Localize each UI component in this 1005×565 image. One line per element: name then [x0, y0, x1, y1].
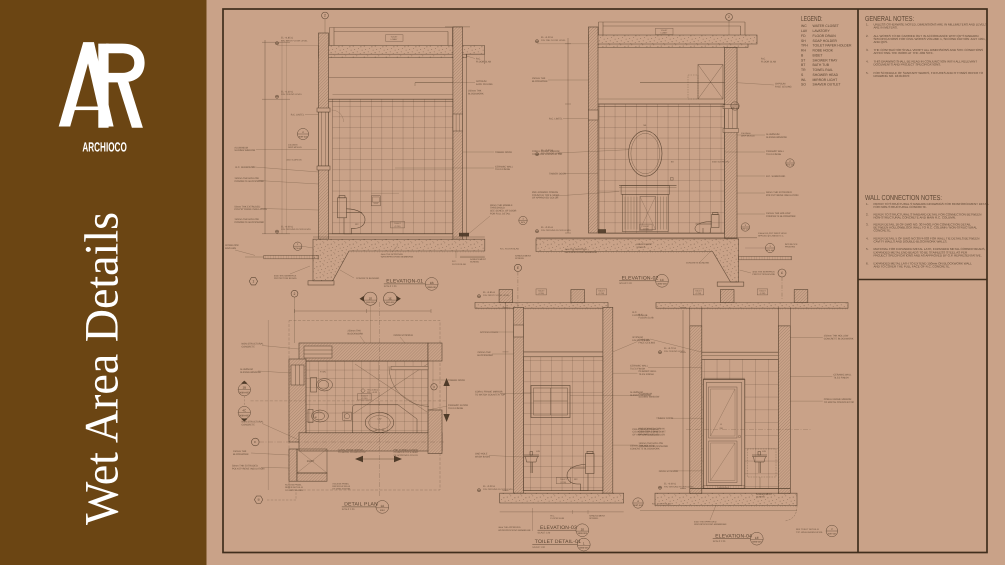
- svg-text:TIMBER DOOR: TIMBER DOOR: [656, 417, 673, 420]
- svg-text:TPH: TPH: [801, 44, 808, 48]
- svg-text:NON-STRUCTURAL CONCRETE AND MA: NON-STRUCTURAL CONCRETE AND MAIN R.C. CO…: [874, 216, 956, 220]
- svg-text:DOCUMENTS AND PROJECT SPECIFIC: DOCUMENTS AND PROJECT SPECIFICATIONS.: [874, 62, 942, 66]
- svg-text:B: B: [258, 498, 260, 502]
- svg-text:FACE CEILING: FACE CEILING: [775, 86, 792, 89]
- svg-text:SOAP HOLDER: SOAP HOLDER: [813, 39, 838, 43]
- svg-text:SLIDING WINDOW: SLIDING WINDOW: [234, 149, 255, 152]
- svg-text:TOILET DETAIL-01: TOILET DETAIL-01: [535, 539, 581, 545]
- svg-text:TOWEL RAIL: TOWEL RAIL: [813, 68, 833, 72]
- svg-text:LOBBY: LOBBY: [391, 38, 398, 41]
- svg-text:SCALE 1:20: SCALE 1:20: [532, 546, 545, 549]
- svg-text:EL +0.00 &: EL +0.00 &: [281, 225, 293, 228]
- svg-text:Wet Area Details: Wet Area Details: [76, 212, 129, 525]
- svg-text:TOILET: TOILET: [642, 225, 650, 228]
- svg-text:TIMBER DOOR: TIMBER DOOR: [549, 173, 566, 176]
- svg-text:4mm THK APPROVED: 4mm THK APPROVED: [498, 526, 521, 529]
- svg-text:R.C. FLOOR SLAB: R.C. FLOOR SLAB: [652, 503, 671, 506]
- svg-text:10: 10: [581, 527, 585, 531]
- svg-text:3010: 3010: [380, 509, 386, 512]
- svg-text:SCALE 1:20: SCALE 1:20: [538, 531, 551, 534]
- svg-text:FOR FULL DETAIL: FOR FULL DETAIL: [490, 213, 511, 216]
- svg-text:LAV: LAV: [801, 29, 808, 33]
- svg-text:4mm THK APPROVED: 4mm THK APPROVED: [565, 248, 588, 251]
- svg-text:WATER CLOSET: WATER CLOSET: [813, 24, 839, 28]
- svg-text:INTERLOCK: INTERLOCK: [785, 243, 798, 246]
- svg-text:OF APPROVED COLOR: OF APPROVED COLOR: [394, 454, 418, 457]
- svg-text:3097-002: 3097-002: [299, 135, 309, 138]
- svg-text:2: 2: [324, 14, 326, 18]
- svg-text:COUNTER TOP & SKIRT: COUNTER TOP & SKIRT: [394, 451, 420, 454]
- svg-text:(1706): (1706): [760, 292, 766, 295]
- svg-text:TO MATCH COUNTER TOP: TO MATCH COUNTER TOP: [475, 393, 506, 396]
- svg-text:3090-003: 3090-003: [239, 392, 250, 395]
- svg-text:EL +4.85 &: EL +4.85 &: [281, 37, 293, 40]
- svg-text:PAVEARS: PAVEARS: [785, 246, 796, 249]
- svg-text:SEE TOILET DETAIL-B: SEE TOILET DETAIL-B: [796, 528, 819, 531]
- svg-text:2.: 2.: [866, 213, 869, 217]
- svg-text:3097-003: 3097-003: [634, 504, 644, 507]
- svg-text:TOILET: TOILET: [391, 36, 399, 39]
- svg-text:FIN. 2ND FLOOR LEVEL: FIN. 2ND FLOOR LEVEL: [541, 39, 566, 42]
- svg-text:PAVEARS: PAVEARS: [225, 247, 236, 250]
- svg-text:FLOOR SLAB: FLOOR SLAB: [632, 314, 647, 317]
- svg-text:WASH BASIN: WASH BASIN: [475, 455, 490, 458]
- svg-text:PRE-FORMED CORIAN: PRE-FORMED CORIAN: [394, 449, 418, 452]
- svg-text:4.: 4.: [866, 59, 869, 63]
- svg-text:ACCESS PANEL: ACCESS PANEL: [332, 482, 349, 485]
- svg-text:DOOR STOPPER: DOOR STOPPER: [394, 334, 413, 337]
- svg-text:3090-003: 3090-003: [366, 301, 375, 304]
- svg-text:PROJECT SPECIFICATIONS AND AS: PROJECT SPECIFICATIONS AND AS APPROVED B…: [874, 253, 982, 257]
- svg-text:FOR NON-STRUCTURAL CONCRETE.: FOR NON-STRUCTURAL CONCRETE.: [874, 205, 928, 209]
- svg-text:DETAIL PLAN: DETAIL PLAN: [344, 502, 378, 508]
- svg-text:TR: TR: [801, 68, 806, 72]
- svg-text:SAND/CEMENT: SAND/CEMENT: [756, 493, 773, 496]
- svg-text:(1705): (1705): [560, 481, 566, 484]
- svg-text:1B: 1B: [242, 386, 246, 390]
- svg-text:SHOWER TRAY: SHOWER TRAY: [813, 58, 839, 62]
- svg-text:3090-003: 3090-003: [427, 286, 437, 289]
- svg-text:(1706): (1706): [599, 292, 605, 295]
- svg-text:ELEVATION-02: ELEVATION-02: [622, 275, 659, 281]
- svg-text:SHAVER OUTLET: SHAVER OUTLET: [813, 83, 841, 87]
- svg-text:TO MATCH COUNTER TOP: TO MATCH COUNTER TOP: [824, 401, 855, 404]
- svg-text:TOILET: TOILET: [361, 395, 369, 398]
- svg-text:TO MATCH COUNTER TOP: TO MATCH COUNTER TOP: [532, 153, 563, 156]
- svg-text:2.: 2.: [866, 34, 869, 38]
- svg-text:TILES FINISH: TILES FINISH: [766, 153, 781, 156]
- svg-text:ST: ST: [801, 58, 805, 62]
- svg-text:R.C. SURROUND: R.C. SURROUND: [766, 175, 786, 178]
- svg-text:TYP. WASH BASIN DETAIL: TYP. WASH BASIN DETAIL: [796, 531, 824, 534]
- svg-text:E: E: [517, 266, 519, 270]
- svg-text:WALL CONNECTION NOTES:: WALL CONNECTION NOTES:: [865, 193, 942, 202]
- svg-text:(1706): (1706): [538, 292, 544, 295]
- svg-text:LOBBY: LOBBY: [661, 32, 668, 35]
- svg-text:TILES FINISH: TILES FINISH: [639, 373, 654, 376]
- svg-text:CONCRETE BLOCKWORK: CONCRETE BLOCKWORK: [234, 221, 264, 224]
- svg-text:POLYSTYRENE INSULATION: POLYSTYRENE INSULATION: [766, 194, 799, 197]
- svg-text:SCALE 1:20: SCALE 1:20: [384, 285, 397, 288]
- svg-text:RH: RH: [801, 49, 806, 53]
- svg-text:SLIDING WINDOW: SLIDING WINDOW: [766, 136, 787, 139]
- svg-text:3074-003: 3074-003: [786, 164, 794, 167]
- svg-text:3mm SLOPE DN: 3mm SLOPE DN: [286, 159, 302, 162]
- svg-text:CONCRETE BLOCKWORK: CONCRETE BLOCKWORK: [630, 447, 660, 450]
- svg-text:LAV: LAV: [378, 418, 383, 421]
- svg-text:R.C. SURROUND: R.C. SURROUND: [235, 166, 255, 169]
- svg-text:BIDET: BIDET: [813, 53, 823, 57]
- svg-text:R.C. FLOOR SLAB: R.C. FLOOR SLAB: [500, 248, 519, 251]
- svg-text:R.C.: R.C.: [452, 260, 457, 263]
- svg-text:FD: FD: [801, 34, 806, 38]
- svg-text:PROTECTION BOARD: PROTECTION BOARD: [752, 273, 775, 276]
- svg-text:WATERPROOFING MEMBRANE: WATERPROOFING MEMBRANE: [381, 255, 414, 258]
- svg-text:BLOCKWORK: BLOCKWORK: [468, 92, 484, 95]
- svg-text:SHOWER HEAD: SHOWER HEAD: [813, 73, 839, 77]
- svg-text:TOILET: TOILET: [394, 222, 402, 225]
- svg-text:LEGEND:: LEGEND:: [801, 14, 823, 23]
- svg-text:3090-003: 3090-003: [752, 541, 762, 544]
- svg-text:TOILET: TOILET: [560, 478, 568, 481]
- svg-text:SLIDING WINDOW: SLIDING WINDOW: [240, 371, 261, 374]
- svg-text:TILES FINISH: TILES FINISH: [833, 377, 848, 380]
- svg-text:DOOR STOPPER: DOOR STOPPER: [659, 470, 678, 473]
- svg-text:1B: 1B: [430, 281, 434, 285]
- svg-text:WL: WL: [801, 78, 806, 82]
- svg-text:E: E: [254, 440, 256, 444]
- svg-text:FLOOR SLAB: FLOOR SLAB: [639, 317, 654, 320]
- svg-text:TOILET: TOILET: [661, 29, 669, 32]
- svg-text:R.C. LINTEL: R.C. LINTEL: [291, 114, 305, 117]
- svg-text:FIN. FIRST FLOOR LEVEL: FIN. FIRST FLOOR LEVEL: [483, 294, 510, 297]
- svg-text:WATERPROOFING MEMBRANE: WATERPROOFING MEMBRANE: [694, 523, 727, 526]
- svg-text:TILES FINISH: TILES FINISH: [630, 368, 645, 371]
- svg-text:CORAL FRAME MIRROR: CORAL FRAME MIRROR: [338, 449, 364, 452]
- svg-text:ARE IN METERS.: ARE IN METERS.: [874, 25, 898, 29]
- svg-text:SCREED: SCREED: [589, 517, 599, 520]
- svg-text:POLYSTYRENE INSULATION: POLYSTYRENE INSULATION: [232, 467, 265, 470]
- svg-text:ACCESS PANEL: ACCESS PANEL: [480, 331, 499, 334]
- svg-text:3097-003: 3097-003: [741, 228, 749, 231]
- svg-text:EL +3.70 &: EL +3.70 &: [664, 347, 676, 350]
- svg-text:R.C.: R.C.: [550, 515, 555, 518]
- svg-text:BLOCKWORK: BLOCKWORK: [532, 80, 548, 83]
- svg-text:CAVITY WALLS AND DOUBLE-BLOCKW: CAVITY WALLS AND DOUBLE-BLOCKWORK WALLS.: [874, 239, 948, 243]
- svg-text:CONCRETE: CONCRETE: [242, 345, 256, 348]
- svg-text:SCREED: SCREED: [756, 495, 766, 498]
- svg-text:EL +4.85 &: EL +4.85 &: [483, 291, 495, 294]
- svg-text:LAV: LAV: [536, 450, 541, 453]
- svg-text:R.C. LINTEL: R.C. LINTEL: [549, 118, 563, 121]
- svg-text:FIN. GROUND FLOOR LEVEL: FIN. GROUND FLOOR LEVEL: [664, 485, 695, 488]
- svg-text:CONCRETE BLOCKWORK: CONCRETE BLOCKWORK: [824, 337, 854, 340]
- svg-text:SO: SO: [801, 83, 806, 87]
- svg-text:ACCESS PANEL: ACCESS PANEL: [285, 484, 302, 487]
- svg-text:AND QCS.: AND QCS.: [874, 40, 889, 44]
- svg-text:2: 2: [294, 292, 296, 296]
- svg-text:ELEVATION-01: ELEVATION-01: [386, 279, 423, 285]
- svg-text:WATERPROOFING MEMBRANE: WATERPROOFING MEMBRANE: [498, 529, 531, 532]
- svg-text:FLOOR SLAB: FLOOR SLAB: [452, 263, 466, 266]
- svg-text:DRAWING NO. 1840-3070: DRAWING NO. 1840-3070: [874, 74, 910, 78]
- svg-text:EL +0.00 &: EL +0.00 &: [664, 483, 676, 486]
- svg-text:SAND/CEMENT: SAND/CEMENT: [515, 254, 532, 257]
- svg-text:1.: 1.: [866, 202, 869, 206]
- svg-text:WC: WC: [574, 478, 578, 481]
- svg-text:4.: 4.: [866, 236, 869, 240]
- svg-text:FIN. FIRST FLOOR LEVEL: FIN. FIRST FLOOR LEVEL: [281, 39, 308, 42]
- svg-text:1: 1: [583, 542, 585, 546]
- svg-text:EL +0.45 &: EL +0.45 &: [541, 226, 553, 229]
- svg-text:3097-003: 3097-003: [828, 533, 838, 536]
- svg-text:FIN. GROUND FLOOR LEVEL: FIN. GROUND FLOOR LEVEL: [281, 228, 312, 231]
- svg-text:SAND/CEMENT: SAND/CEMENT: [470, 258, 487, 261]
- svg-text:MIRROR LIGHT: MIRROR LIGHT: [813, 78, 838, 82]
- svg-text:TOILET PAPER HOLDER: TOILET PAPER HOLDER: [813, 44, 853, 48]
- svg-text:4mm THK APPROVED: 4mm THK APPROVED: [381, 253, 404, 256]
- svg-text:BLOCKWORK: BLOCKWORK: [477, 354, 493, 357]
- svg-text:SPACED @ 1200mm O.C.: SPACED @ 1200mm O.C.: [758, 235, 784, 238]
- svg-text:SAND/CEMENT: SAND/CEMENT: [589, 515, 606, 518]
- svg-text:FACE CEILING: FACE CEILING: [639, 341, 656, 344]
- svg-text:FIN. GROUND FLOOR LEVEL: FIN. GROUND FLOOR LEVEL: [541, 229, 572, 232]
- svg-text:DRIP MOULD: DRIP MOULD: [288, 146, 302, 149]
- svg-text:CONCRETE.: CONCRETE.: [874, 229, 892, 233]
- svg-text:CONCRETE: CONCRETE: [242, 423, 256, 426]
- svg-text:3mm THK SERRPACK: 3mm THK SERRPACK: [274, 275, 297, 278]
- svg-text:CONCRETE BLOCKWORK: CONCRETE BLOCKWORK: [766, 215, 796, 218]
- svg-text:BATH TUB: BATH TUB: [813, 63, 830, 67]
- svg-text:SH: SH: [801, 39, 806, 43]
- svg-text:4mm THK APPROVED: 4mm THK APPROVED: [694, 520, 717, 523]
- svg-text:3090-003: 3090-003: [578, 532, 588, 535]
- svg-text:SAND/CEMENT: SAND/CEMENT: [636, 243, 653, 246]
- svg-text:(1705): (1705): [643, 228, 649, 231]
- svg-text:P. WC: P. WC: [320, 371, 326, 374]
- svg-text:SCALE 1:20: SCALE 1:20: [619, 282, 632, 285]
- svg-text:EL +0.00 &: EL +0.00 &: [483, 485, 495, 488]
- svg-text:CONCRETE BLINDING: CONCRETE BLINDING: [686, 262, 710, 265]
- svg-text:3090-003: 3090-003: [579, 547, 589, 550]
- svg-text:OF DWG 3A4-003: OF DWG 3A4-003: [285, 489, 304, 492]
- svg-text:CONCRETE BLINDING: CONCRETE BLINDING: [356, 277, 380, 280]
- svg-text:(1705): (1705): [395, 225, 401, 228]
- svg-text:SCREED: SCREED: [470, 260, 480, 263]
- svg-text:13x13mm: 13x13mm: [741, 132, 751, 135]
- svg-text:FLOOR SLAB: FLOOR SLAB: [476, 60, 491, 63]
- svg-text:WC: WC: [801, 24, 807, 28]
- svg-text:DUCT: DUCT: [307, 459, 315, 463]
- svg-text:LAVATORY: LAVATORY: [813, 29, 831, 33]
- svg-text:LAV: LAV: [762, 450, 767, 453]
- svg-text:TILES FINISH: TILES FINISH: [448, 407, 463, 410]
- svg-text:BLOCKWORK: BLOCKWORK: [233, 453, 249, 456]
- svg-text:BT: BT: [801, 63, 805, 67]
- svg-text:ROBE HOOK: ROBE HOOK: [813, 49, 834, 53]
- svg-text:FLOOR SLAB: FLOOR SLAB: [761, 60, 776, 63]
- svg-text:BLOCKWORK: BLOCKWORK: [348, 332, 364, 335]
- svg-text:SO: SO: [671, 161, 674, 164]
- svg-text:PROTECTION BOARD: PROTECTION BOARD: [274, 277, 297, 280]
- svg-text:3090-003: 3090-003: [386, 301, 395, 304]
- svg-text:SCALE 1:20: SCALE 1:20: [713, 540, 726, 543]
- svg-text:3074-002: 3074-002: [766, 249, 774, 252]
- svg-text:1E: 1E: [755, 536, 759, 540]
- svg-text:TILES FINISH: TILES FINISH: [495, 168, 510, 171]
- svg-text:FLOOR SLAB: FLOOR SLAB: [550, 517, 564, 520]
- svg-text:ELEVATION-03: ELEVATION-03: [540, 525, 577, 531]
- svg-text:FLOOR DRAIN: FLOOR DRAIN: [813, 34, 837, 38]
- svg-text:+EL.4.45 &: +EL.4.45 &: [367, 388, 378, 391]
- svg-text:ARCHIOCO: ARCHIOCO: [82, 140, 126, 155]
- svg-text:(1706): (1706): [696, 292, 702, 295]
- svg-text:EL +2.30 &: EL +2.30 &: [281, 90, 293, 93]
- svg-text:REFER DETAIL-B: REFER DETAIL-B: [332, 485, 350, 488]
- svg-text:3mm THK SERRPACK: 3mm THK SERRPACK: [752, 271, 775, 274]
- svg-text:5.: 5.: [866, 71, 869, 75]
- svg-text:3090-003: 3090-003: [657, 283, 667, 286]
- svg-text:10: 10: [369, 296, 373, 300]
- svg-text:FFL +4.20: FFL +4.20: [367, 391, 378, 394]
- svg-text:SLIDING WINDOW: SLIDING WINDOW: [630, 394, 651, 397]
- svg-text:SPECIFICATIONS FOR CIVIL WORKS: SPECIFICATIONS FOR CIVIL WORKS VOLUME 1,…: [874, 37, 986, 41]
- svg-text:TIMBER DOOR: TIMBER DOOR: [495, 151, 512, 154]
- svg-text:FIN. CEILING LEVEL: FIN. CEILING LEVEL: [281, 93, 303, 96]
- svg-text:13mm DIA PVC WEEP HOLE: 13mm DIA PVC WEEP HOLE: [758, 232, 787, 235]
- svg-text:3097-002: 3097-002: [731, 107, 739, 110]
- svg-text:OF DWG 3A4-003: OF DWG 3A4-003: [332, 488, 351, 491]
- svg-text:FIN. CEILING LEVEL: FIN. CEILING LEVEL: [664, 350, 686, 353]
- svg-text:FACE CEILING: FACE CEILING: [476, 83, 493, 86]
- svg-text:5.: 5.: [866, 247, 869, 251]
- svg-text:AND TO COVER THE FULL FACE OF: AND TO COVER THE FULL FACE OF R.C. CONCR…: [874, 264, 951, 268]
- svg-text:3090-003: 3090-003: [239, 414, 250, 417]
- svg-text:13x13mm: 13x13mm: [288, 143, 298, 146]
- svg-text:SCALE 1:20: SCALE 1:20: [342, 508, 355, 511]
- svg-text:AFFECTING THE WORK AT THE JOB: AFFECTING THE WORK AT THE JOB SITE.: [874, 51, 934, 55]
- svg-text:1.: 1.: [866, 22, 869, 26]
- svg-text:ELEVATION-04: ELEVATION-04: [715, 533, 752, 539]
- svg-text:3mm SLOPE ON: 3mm SLOPE ON: [712, 161, 729, 164]
- svg-text:REFER DETAIL-B: REFER DETAIL-B: [285, 486, 303, 489]
- svg-text:1E: 1E: [388, 296, 392, 300]
- svg-text:SCREED: SCREED: [515, 257, 525, 260]
- svg-text:WATERPROOFING MEMBRANE: WATERPROOFING MEMBRANE: [565, 251, 598, 254]
- svg-text:FALSE CEILING: FALSE CEILING: [632, 339, 650, 342]
- svg-text:2: 2: [728, 15, 730, 19]
- svg-text:TO MATCH COUNTER TOP: TO MATCH COUNTER TOP: [338, 451, 366, 454]
- svg-text:TIMBER DOOR: TIMBER DOOR: [448, 379, 465, 382]
- svg-text:WC: WC: [355, 223, 359, 226]
- svg-text:FIN. GROUND FLOOR LEVEL: FIN. GROUND FLOOR LEVEL: [483, 488, 514, 491]
- svg-text:3.: 3.: [866, 222, 869, 226]
- svg-text:3.: 3.: [866, 48, 869, 52]
- svg-text:SCREED: SCREED: [636, 246, 646, 249]
- svg-text:(1705): (1705): [362, 397, 368, 400]
- svg-text:OF APPROVED COLOR: OF APPROVED COLOR: [632, 434, 659, 437]
- svg-text:OF APPROVED COLOR: OF APPROVED COLOR: [532, 197, 559, 200]
- svg-text:EL +4.20 &: EL +4.20 &: [541, 36, 553, 39]
- svg-text:6.: 6.: [866, 261, 869, 265]
- svg-text:3074-002: 3074-002: [294, 247, 302, 250]
